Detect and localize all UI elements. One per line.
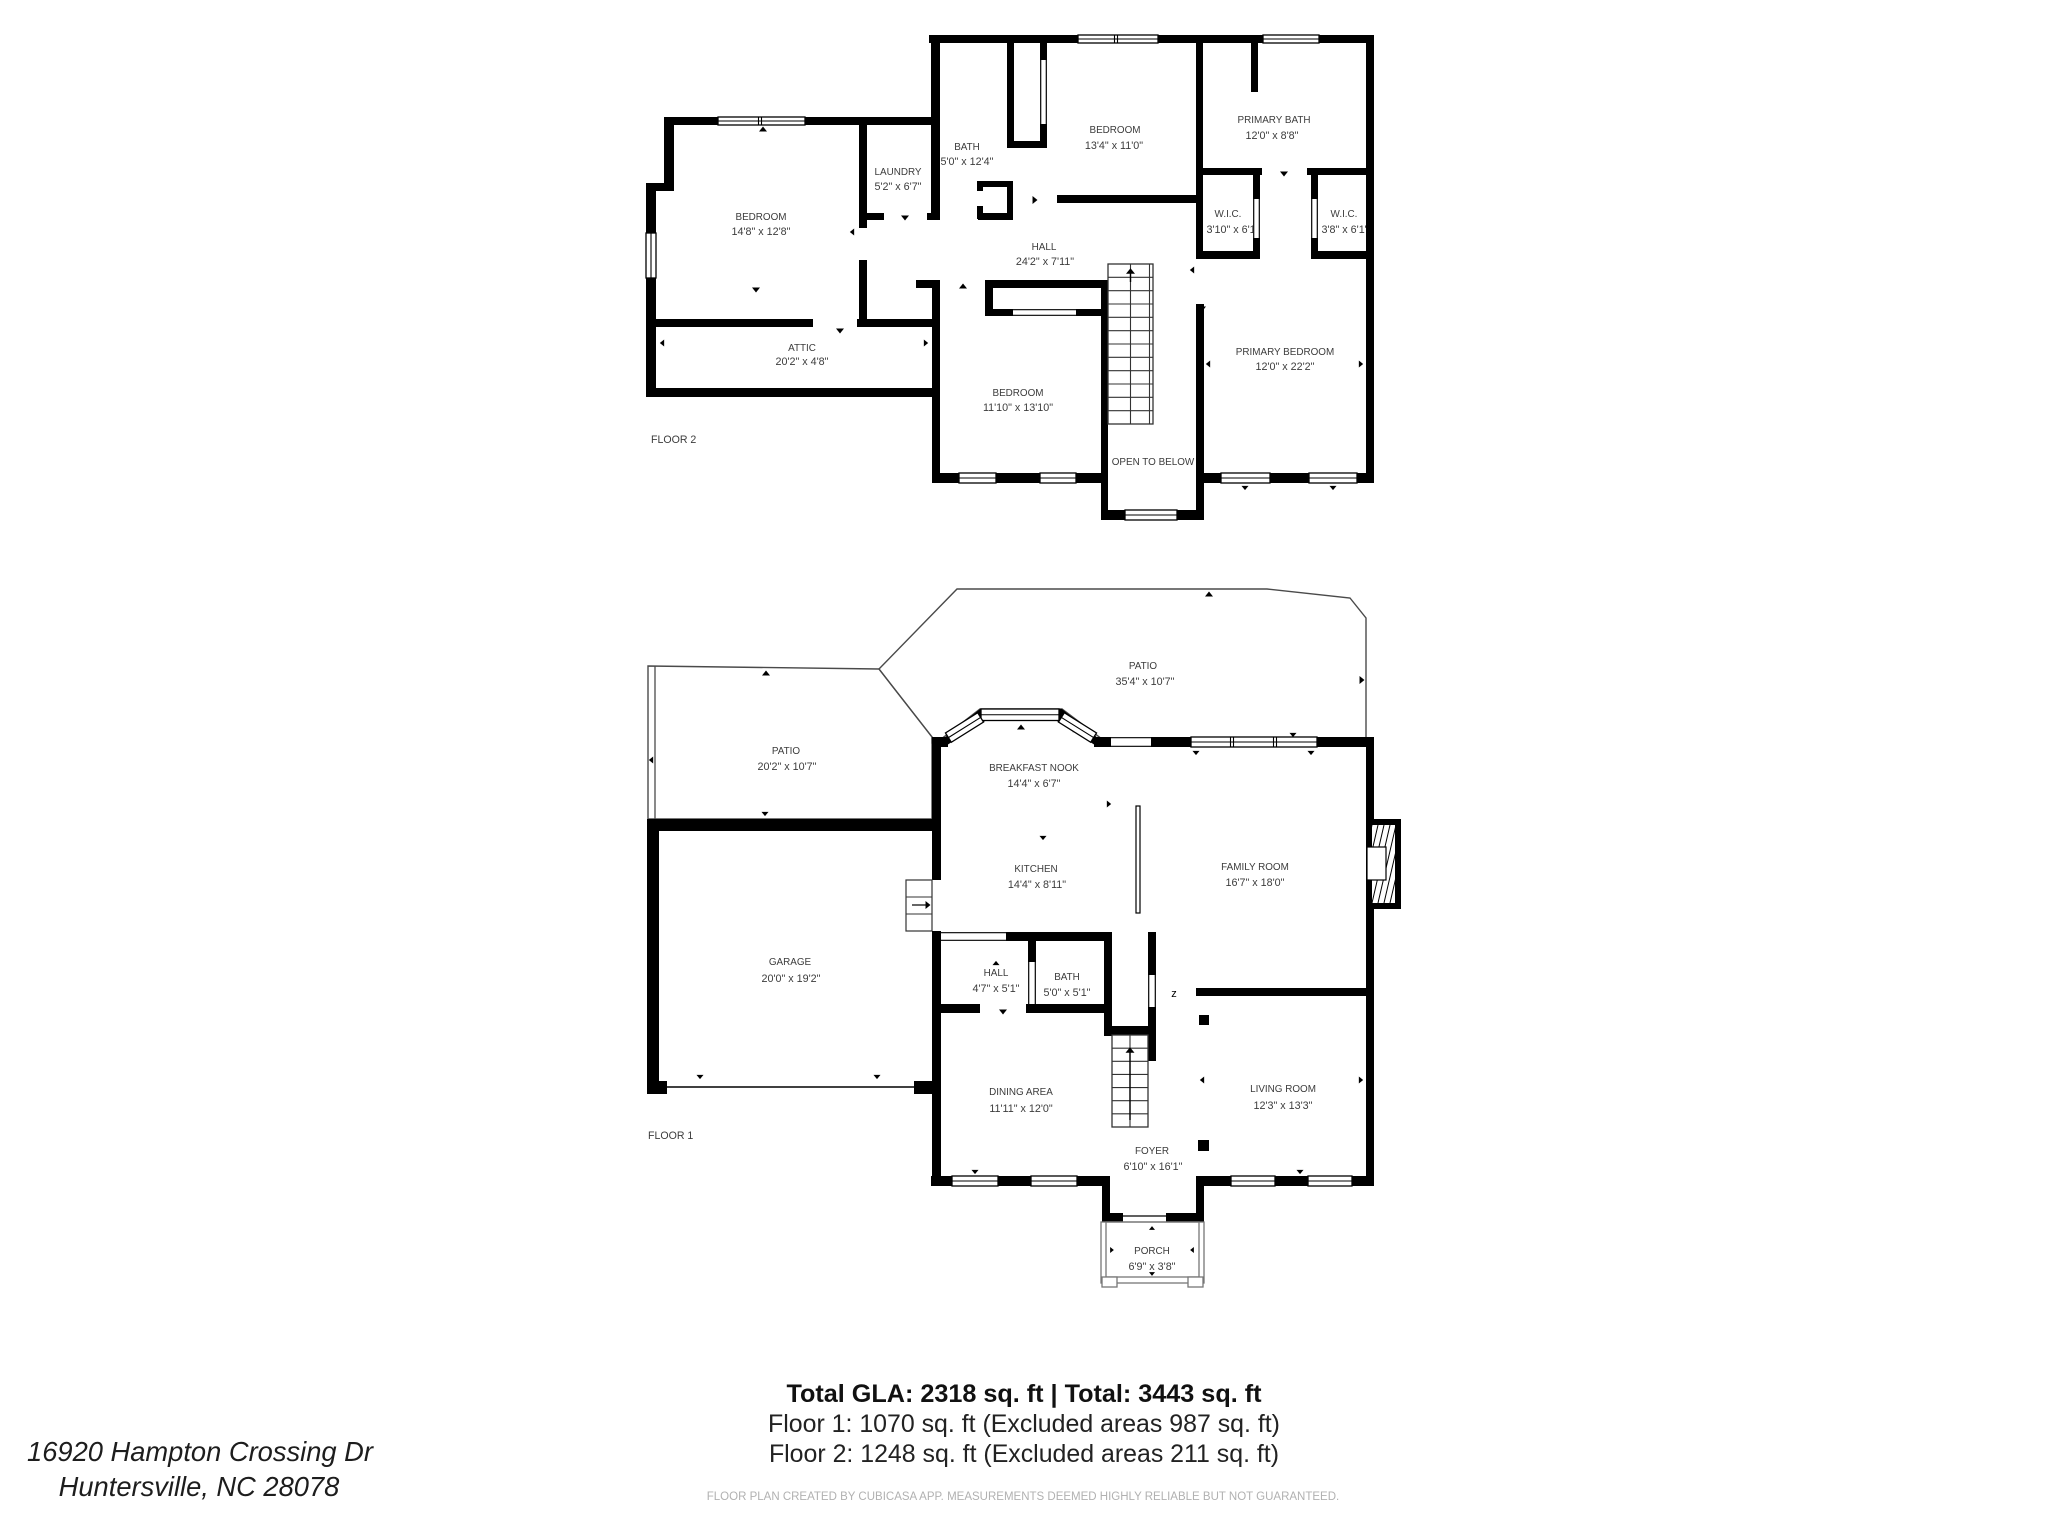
svg-text:FLOOR PLAN CREATED BY CUBICASA: FLOOR PLAN CREATED BY CUBICASA APP. MEAS…	[707, 1491, 1339, 1503]
svg-text:13'4" x 11'0": 13'4" x 11'0"	[1085, 140, 1143, 152]
svg-text:BEDROOM: BEDROOM	[992, 388, 1043, 399]
svg-text:ATTIC: ATTIC	[788, 343, 816, 354]
svg-text:LAUNDRY: LAUNDRY	[874, 167, 921, 178]
svg-text:16'7" x 18'0": 16'7" x 18'0"	[1226, 877, 1285, 889]
svg-text:W.I.C.: W.I.C.	[1215, 209, 1242, 220]
svg-text:Total GLA: 2318 sq. ft | Total: Total GLA: 2318 sq. ft | Total: 3443 sq.…	[787, 1380, 1263, 1408]
svg-text:14'4" x 6'7": 14'4" x 6'7"	[1008, 778, 1061, 790]
svg-text:PRIMARY BEDROOM: PRIMARY BEDROOM	[1236, 347, 1334, 358]
svg-text:12'0" x 22'2": 12'0" x 22'2"	[1256, 361, 1315, 373]
svg-text:FLOOR 1: FLOOR 1	[648, 1130, 693, 1142]
svg-text:PORCH: PORCH	[1134, 1246, 1170, 1257]
svg-text:DINING AREA: DINING AREA	[989, 1087, 1053, 1098]
svg-text:11'11" x 12'0": 11'11" x 12'0"	[989, 1103, 1053, 1115]
svg-text:HALL: HALL	[1032, 242, 1057, 253]
svg-text:12'0" x 8'8": 12'0" x 8'8"	[1246, 130, 1299, 142]
svg-text:PATIO: PATIO	[772, 746, 800, 757]
svg-text:14'4" x 8'11": 14'4" x 8'11"	[1008, 879, 1066, 891]
svg-text:PRIMARY BATH: PRIMARY BATH	[1238, 115, 1311, 126]
svg-text:BREAKFAST NOOK: BREAKFAST NOOK	[989, 763, 1079, 774]
svg-text:PATIO: PATIO	[1129, 661, 1157, 672]
svg-text:11'10" x 13'10": 11'10" x 13'10"	[983, 402, 1053, 414]
svg-text:GARAGE: GARAGE	[769, 957, 812, 968]
svg-text:20'2" x 10'7": 20'2" x 10'7"	[758, 761, 817, 773]
svg-text:Huntersville, NC 28078: Huntersville, NC 28078	[59, 1471, 341, 1502]
svg-text:BATH: BATH	[954, 142, 980, 153]
svg-text:Floor 1: 1070 sq. ft (Excluded: Floor 1: 1070 sq. ft (Excluded areas 987…	[768, 1410, 1280, 1438]
svg-text:OPEN TO BELOW: OPEN TO BELOW	[1112, 457, 1195, 468]
svg-text:14'8" x 12'8": 14'8" x 12'8"	[732, 226, 791, 238]
svg-text:5'2" x 6'7": 5'2" x 6'7"	[875, 181, 922, 193]
svg-text:6'10" x 16'1": 6'10" x 16'1"	[1124, 1161, 1183, 1173]
svg-text:24'2" x 7'11": 24'2" x 7'11"	[1016, 256, 1074, 268]
svg-text:12'3" x 13'3": 12'3" x 13'3"	[1254, 1100, 1313, 1112]
svg-text:z: z	[1171, 988, 1177, 1000]
svg-text:BEDROOM: BEDROOM	[735, 212, 786, 223]
svg-text:3'8" x 6'1": 3'8" x 6'1"	[1322, 224, 1369, 236]
svg-text:LIVING ROOM: LIVING ROOM	[1250, 1084, 1316, 1095]
svg-text:FOYER: FOYER	[1135, 1146, 1169, 1157]
svg-text:5'0" x 5'1": 5'0" x 5'1"	[1044, 987, 1091, 999]
svg-text:HALL: HALL	[984, 968, 1009, 979]
svg-text:16920 Hampton Crossing Dr: 16920 Hampton Crossing Dr	[27, 1436, 375, 1467]
svg-text:5'0" x 12'4": 5'0" x 12'4"	[941, 156, 994, 168]
svg-text:FLOOR 2: FLOOR 2	[651, 434, 696, 446]
svg-text:6'9" x 3'8": 6'9" x 3'8"	[1129, 1261, 1176, 1273]
svg-text:BEDROOM: BEDROOM	[1089, 125, 1140, 136]
svg-text:35'4" x 10'7": 35'4" x 10'7"	[1116, 676, 1175, 688]
svg-text:4'7" x 5'1": 4'7" x 5'1"	[973, 983, 1020, 995]
svg-text:W.I.C.: W.I.C.	[1331, 209, 1358, 220]
svg-text:Floor 2: 1248 sq. ft (Excluded: Floor 2: 1248 sq. ft (Excluded areas 211…	[769, 1440, 1279, 1468]
svg-text:20'0" x 19'2": 20'0" x 19'2"	[762, 973, 821, 985]
svg-text:FAMILY ROOM: FAMILY ROOM	[1221, 862, 1289, 873]
svg-text:20'2" x 4'8": 20'2" x 4'8"	[776, 356, 829, 368]
svg-text:BATH: BATH	[1054, 972, 1080, 983]
svg-text:KITCHEN: KITCHEN	[1014, 864, 1057, 875]
svg-text:3'10" x 6'1": 3'10" x 6'1"	[1207, 224, 1260, 236]
